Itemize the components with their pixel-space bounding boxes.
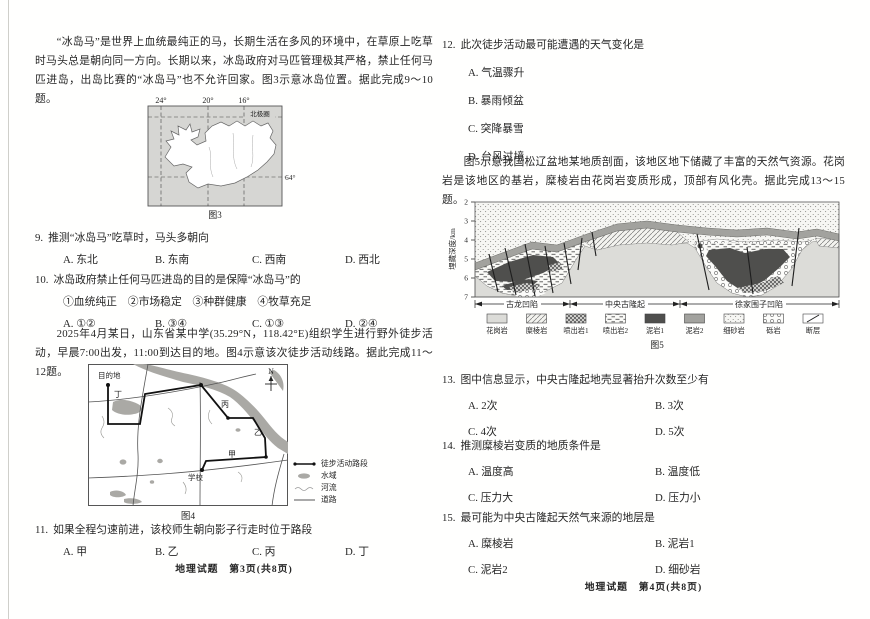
arctic-circle-label: 北极圈 — [250, 109, 270, 118]
svg-text:6: 6 — [464, 274, 468, 283]
lon-label-16: 16° — [238, 96, 249, 105]
option-d: D. 细砂岩 — [655, 561, 701, 580]
option-a: A. 糜棱岩 — [468, 535, 514, 554]
option-c: C. 丙 — [252, 543, 275, 562]
option-b: B. 乙 — [155, 543, 178, 562]
svg-text:喷出岩1: 喷出岩1 — [563, 326, 589, 335]
question-13: 13.图中信息显示，中央古隆起地壳显著抬升次数至少有 A. 2次 B. 3次 C… — [442, 371, 845, 442]
footer-page-3: 地理试题 第3页(共8页) — [35, 561, 433, 575]
option-a: A. 温度高 — [468, 463, 514, 482]
question-9: 9.推测“冰岛马”吃草时，马头多朝向 A. 东北 B. 东南 C. 西南 D. … — [35, 229, 433, 271]
svg-text:泥岩1: 泥岩1 — [646, 326, 664, 335]
question-text: 冰岛政府禁止任何马匹进岛的目的是保障“冰岛马”的 — [54, 274, 301, 286]
figure-4-legend: 徒步活动路段 水域 河流 道路 — [292, 458, 368, 506]
exam-paper-spread: “冰岛马”是世界上血统最纯正的马，长期生活在多风的环境中，在草原上吃草时马头总是… — [0, 0, 870, 619]
option-a: A. 东北 — [63, 251, 98, 270]
segment-ding-label: 丁 — [114, 390, 122, 399]
legend-item-river: 河流 — [292, 482, 368, 494]
figure-5-legend: 花岗岩 糜棱岩 喷出岩1 喷出岩2 泥岩1 泥岩2 细砂岩 砾岩 断层 — [486, 314, 823, 335]
question-text: 推测糜棱岩变质的地质条件是 — [461, 440, 601, 452]
option-d: D. 丁 — [345, 543, 369, 562]
river-line-icon — [292, 484, 318, 492]
svg-text:5: 5 — [464, 255, 468, 264]
figure-5-cross-section: 埋藏深度/km 2 3 4 5 6 7 — [447, 198, 847, 352]
svg-text:4: 4 — [464, 236, 468, 245]
question-text: 如果全程匀速前进，该校师生朝向影子行走时位于路段 — [53, 524, 312, 536]
figure-5-caption: 图5 — [650, 340, 664, 350]
lat-label-64: 64° — [285, 173, 296, 182]
figure-4-hiking-map: 目的地 丁 丙 乙 甲 学校 N — [88, 364, 288, 506]
option-b: B. 3次 — [655, 397, 684, 416]
svg-text:细砂岩: 细砂岩 — [723, 326, 745, 335]
question-text: 图中信息显示，中央古隆起地壳显著抬升次数至少有 — [461, 374, 709, 386]
question-number: 15. — [442, 512, 456, 524]
segment-bing-label: 丙 — [221, 400, 229, 409]
footer-page-4: 地理试题 第4页(共8页) — [442, 579, 845, 593]
y-axis-label: 埋藏深度/km — [447, 228, 457, 270]
figure-4-caption: 图4 — [88, 508, 288, 522]
option-c: C. 突降暴雪 — [468, 120, 845, 139]
legend-label: 道路 — [321, 494, 337, 506]
option-b: B. 暴雨倾盆 — [468, 92, 845, 111]
svg-text:糜棱岩: 糜棱岩 — [526, 326, 548, 335]
question-text: 此次徒步活动最可能遭遇的天气变化是 — [461, 39, 645, 51]
legend-label: 河流 — [321, 482, 337, 494]
school-label: 学校 — [188, 472, 203, 482]
segment-jia-label: 甲 — [228, 450, 236, 459]
question-15: 15.最可能为中央古隆起天然气来源的地层是 A. 糜棱岩 B. 泥岩1 C. 泥… — [442, 509, 845, 580]
lon-label-24: 24° — [155, 96, 166, 105]
page-edge-line — [8, 0, 9, 619]
svg-text:喷出岩2: 喷出岩2 — [603, 326, 629, 335]
svg-text:3: 3 — [464, 217, 468, 226]
question-14: 14.推测糜棱岩变质的地质条件是 A. 温度高 B. 温度低 C. 压力大 D.… — [442, 437, 845, 508]
numbered-items: ①血统纯正 ②市场稳定 ③种群健康 ④牧草充足 — [63, 293, 433, 312]
destination-label: 目的地 — [98, 370, 121, 380]
option-b: B. 温度低 — [655, 463, 700, 482]
svg-text:断层: 断层 — [806, 326, 820, 335]
question-number: 12. — [442, 39, 456, 51]
legend-item-road: 道路 — [292, 494, 368, 506]
question-11: 11.如果全程匀速前进，该校师生朝向影子行走时位于路段 A. 甲 B. 乙 C.… — [35, 521, 433, 563]
option-c: C. 压力大 — [468, 489, 513, 508]
option-a: A. 气温骤升 — [468, 64, 845, 83]
legend-label: 徒步活动路段 — [321, 458, 368, 470]
segment-yi-label: 乙 — [254, 428, 262, 437]
legend-label: 水域 — [321, 470, 337, 482]
option-b: B. 东南 — [155, 251, 189, 270]
option-c: C. 西南 — [252, 251, 286, 270]
strata — [475, 202, 839, 297]
legend-item-water: 水域 — [292, 470, 368, 482]
option-d: D. 西北 — [345, 251, 380, 270]
question-number: 14. — [442, 440, 456, 452]
svg-text:中央古隆起: 中央古隆起 — [605, 299, 645, 309]
option-a: A. 2次 — [468, 397, 497, 416]
svg-text:砾岩: 砾岩 — [766, 326, 780, 335]
route-line-icon — [292, 460, 318, 468]
y-axis-ticks: 2 3 4 5 6 7 — [464, 198, 475, 302]
question-number: 9. — [35, 232, 43, 244]
svg-text:2: 2 — [464, 198, 468, 207]
svg-text:徐家围子凹陷: 徐家围子凹陷 — [735, 299, 783, 309]
question-text: 最可能为中央古隆起天然气来源的地层是 — [461, 512, 655, 524]
option-a: A. 甲 — [63, 543, 87, 562]
svg-text:泥岩2: 泥岩2 — [686, 326, 704, 335]
svg-text:7: 7 — [464, 293, 468, 302]
option-c: C. 泥岩2 — [468, 561, 508, 580]
svg-text:N: N — [268, 367, 274, 376]
question-text: 推测“冰岛马”吃草时，马头多朝向 — [48, 232, 209, 244]
question-12: 12.此次徒步活动最可能遭遇的天气变化是 A. 气温骤升 B. 暴雨倾盆 C. … — [442, 36, 845, 167]
legend-item-route: 徒步活动路段 — [292, 458, 368, 470]
question-number: 11. — [35, 524, 48, 536]
option-b: B. 泥岩1 — [655, 535, 695, 554]
water-area-icon — [292, 472, 318, 480]
lon-label-20: 20° — [202, 96, 213, 105]
svg-text:花岗岩: 花岗岩 — [486, 326, 508, 335]
figure-3-caption: 图3 — [208, 210, 222, 220]
question-number: 10. — [35, 274, 49, 286]
road-line-icon — [292, 496, 318, 504]
option-d: D. 压力小 — [655, 489, 701, 508]
svg-text:古龙凹陷: 古龙凹陷 — [506, 299, 538, 309]
question-number: 13. — [442, 374, 456, 386]
figure-3-iceland-map: 24° 20° 16° 北极圈 64° 图3 — [145, 95, 320, 221]
